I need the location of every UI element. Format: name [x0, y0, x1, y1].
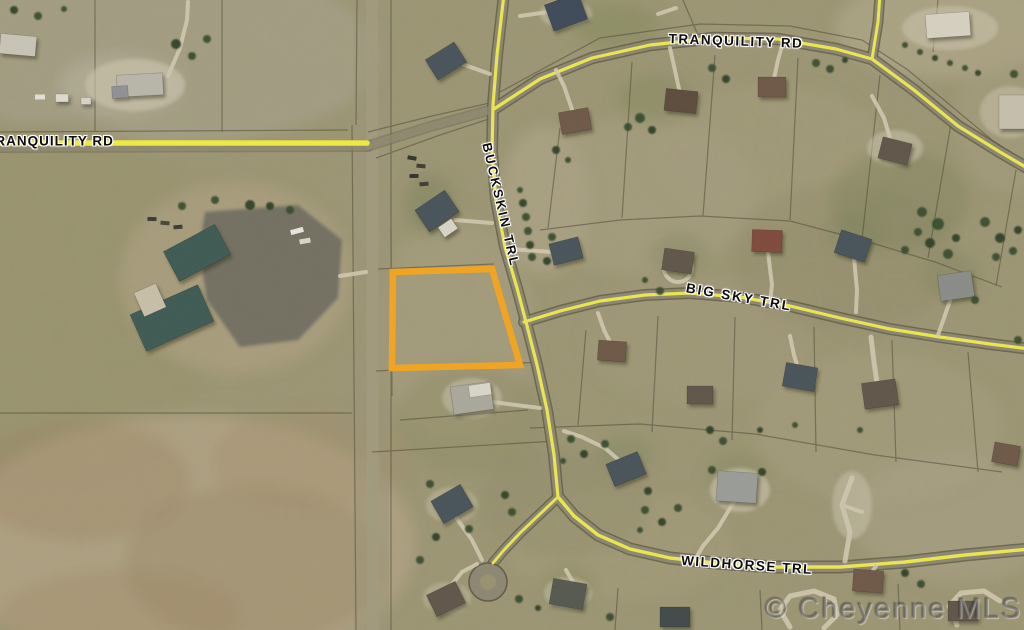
mls-watermark: © Cheyenne MLS [765, 593, 1022, 626]
map-canvas [0, 0, 1024, 630]
aerial-parcel-map: TRANQUILITY RD TRANQUILITY RD BUCKSKIN T… [0, 0, 1024, 630]
road-label-tranquility-rd-left: TRANQUILITY RD [0, 134, 114, 149]
